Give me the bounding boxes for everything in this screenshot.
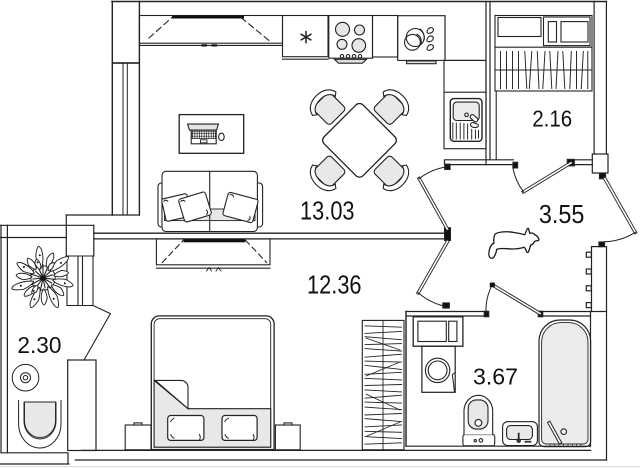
- svg-text:13.03: 13.03: [300, 195, 355, 225]
- svg-text:2.30: 2.30: [17, 332, 61, 358]
- svg-text:2.16: 2.16: [532, 105, 572, 131]
- svg-text:12.36: 12.36: [307, 270, 362, 300]
- svg-text:3.55: 3.55: [539, 199, 585, 229]
- svg-text:3.67: 3.67: [473, 364, 518, 390]
